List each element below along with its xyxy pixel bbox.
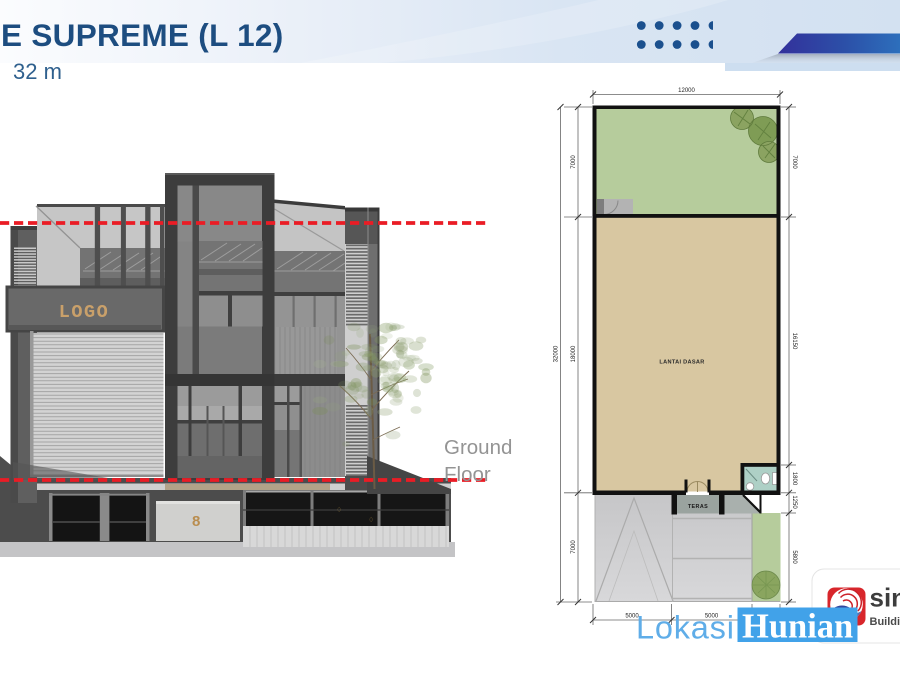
svg-text:E SUPREME (L 12): E SUPREME (L 12) — [1, 17, 284, 53]
svg-text:8: 8 — [192, 513, 200, 530]
svg-text:TERAS: TERAS — [688, 504, 708, 510]
svg-text:5800: 5800 — [791, 550, 797, 564]
svg-text:1800: 1800 — [791, 472, 797, 486]
svg-text:7000: 7000 — [571, 540, 577, 554]
svg-text:LANTAI DASAR: LANTAI DASAR — [659, 360, 704, 366]
svg-text:Floor: Floor — [444, 463, 491, 486]
svg-text:16150: 16150 — [791, 333, 797, 350]
svg-text:32 m: 32 m — [13, 59, 62, 84]
svg-text:♢: ♢ — [336, 506, 342, 514]
svg-text:Hunian: Hunian — [742, 608, 853, 646]
svg-text:7000: 7000 — [571, 155, 577, 169]
svg-text:32000: 32000 — [554, 345, 560, 362]
svg-text:Ground: Ground — [444, 436, 512, 459]
svg-text:LOGO: LOGO — [59, 302, 109, 323]
svg-text:1250: 1250 — [791, 495, 797, 509]
svg-text:Lokasi: Lokasi — [636, 610, 735, 646]
svg-text:♢: ♢ — [368, 516, 374, 524]
svg-text:Building: Building — [870, 616, 900, 628]
svg-text:7000: 7000 — [791, 155, 797, 169]
svg-text:18000: 18000 — [571, 345, 577, 362]
svg-text:sinar: sinar — [870, 583, 900, 613]
svg-text:12000: 12000 — [678, 88, 695, 94]
